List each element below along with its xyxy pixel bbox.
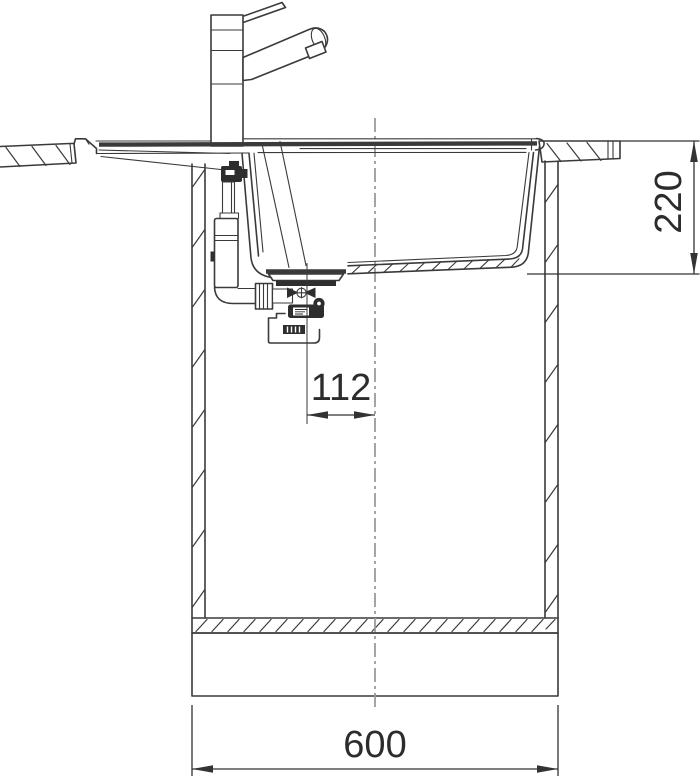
dimension-drain-offset-112: 112 [307,367,375,419]
arrow-down-icon [690,253,698,274]
sink-section-drawing: 220 112 600 [0,0,700,777]
rim-left-lip [74,139,97,154]
arrow-up-icon [690,141,698,162]
faucet-mixer [211,3,329,147]
dimension-value-112: 112 [311,367,372,409]
arrow-right-icon [537,765,558,772]
countertop-right [539,141,620,162]
sink-rim [74,139,544,171]
cabinet-left-wall [192,164,205,618]
arrow-left-icon [192,765,213,772]
technical-drawing: 220 112 600 [0,0,700,777]
arrow-left-icon [307,411,328,418]
dimension-width-600: 600 [192,705,558,776]
mixer-body [211,15,243,146]
cabinet-right-wall [545,161,558,618]
countertop-left [0,144,76,168]
dimension-value-600: 600 [343,724,406,766]
sink-bowl [242,142,540,278]
mixer-spout [243,26,329,80]
arrow-right-icon [354,411,375,418]
dimension-value-220: 220 [648,170,690,233]
